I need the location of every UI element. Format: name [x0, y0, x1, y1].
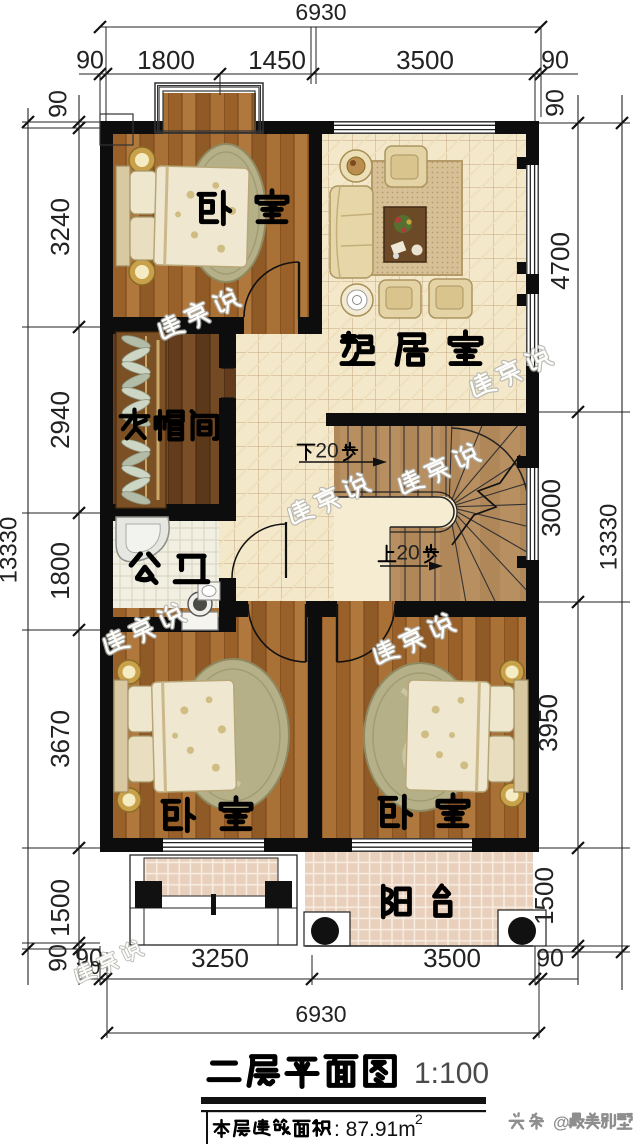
svg-text:2940: 2940 [45, 391, 75, 449]
svg-text:90: 90 [76, 47, 104, 75]
svg-text:3670: 3670 [45, 710, 75, 768]
svg-text:13330: 13330 [595, 504, 622, 571]
svg-text:1500: 1500 [529, 867, 559, 925]
svg-text:90: 90 [45, 90, 73, 118]
svg-text:3500: 3500 [423, 943, 481, 973]
svg-text:@: @ [553, 1113, 570, 1132]
svg-text:4700: 4700 [545, 232, 575, 290]
svg-text:1800: 1800 [137, 45, 195, 75]
svg-text:: 87.91m: : 87.91m [334, 1118, 416, 1141]
svg-text:20: 20 [315, 440, 338, 463]
svg-text:90: 90 [536, 945, 564, 973]
svg-text:6930: 6930 [295, 1001, 346, 1027]
svg-text:1:100: 1:100 [414, 1057, 489, 1090]
svg-text:6930: 6930 [295, 0, 346, 25]
svg-text:90: 90 [542, 89, 570, 117]
svg-text:20: 20 [396, 542, 419, 565]
svg-text:3240: 3240 [45, 198, 75, 256]
svg-text:2: 2 [415, 1111, 423, 1127]
svg-text:1500: 1500 [45, 879, 75, 937]
svg-text:13330: 13330 [0, 517, 22, 584]
svg-text:90: 90 [45, 944, 73, 972]
svg-text:90: 90 [541, 47, 569, 75]
svg-text:3950: 3950 [533, 694, 563, 752]
svg-text:3000: 3000 [536, 479, 566, 537]
svg-text:1800: 1800 [45, 542, 75, 600]
svg-text:3250: 3250 [191, 943, 249, 973]
svg-text:3500: 3500 [396, 45, 454, 75]
svg-text:1450: 1450 [248, 45, 306, 75]
